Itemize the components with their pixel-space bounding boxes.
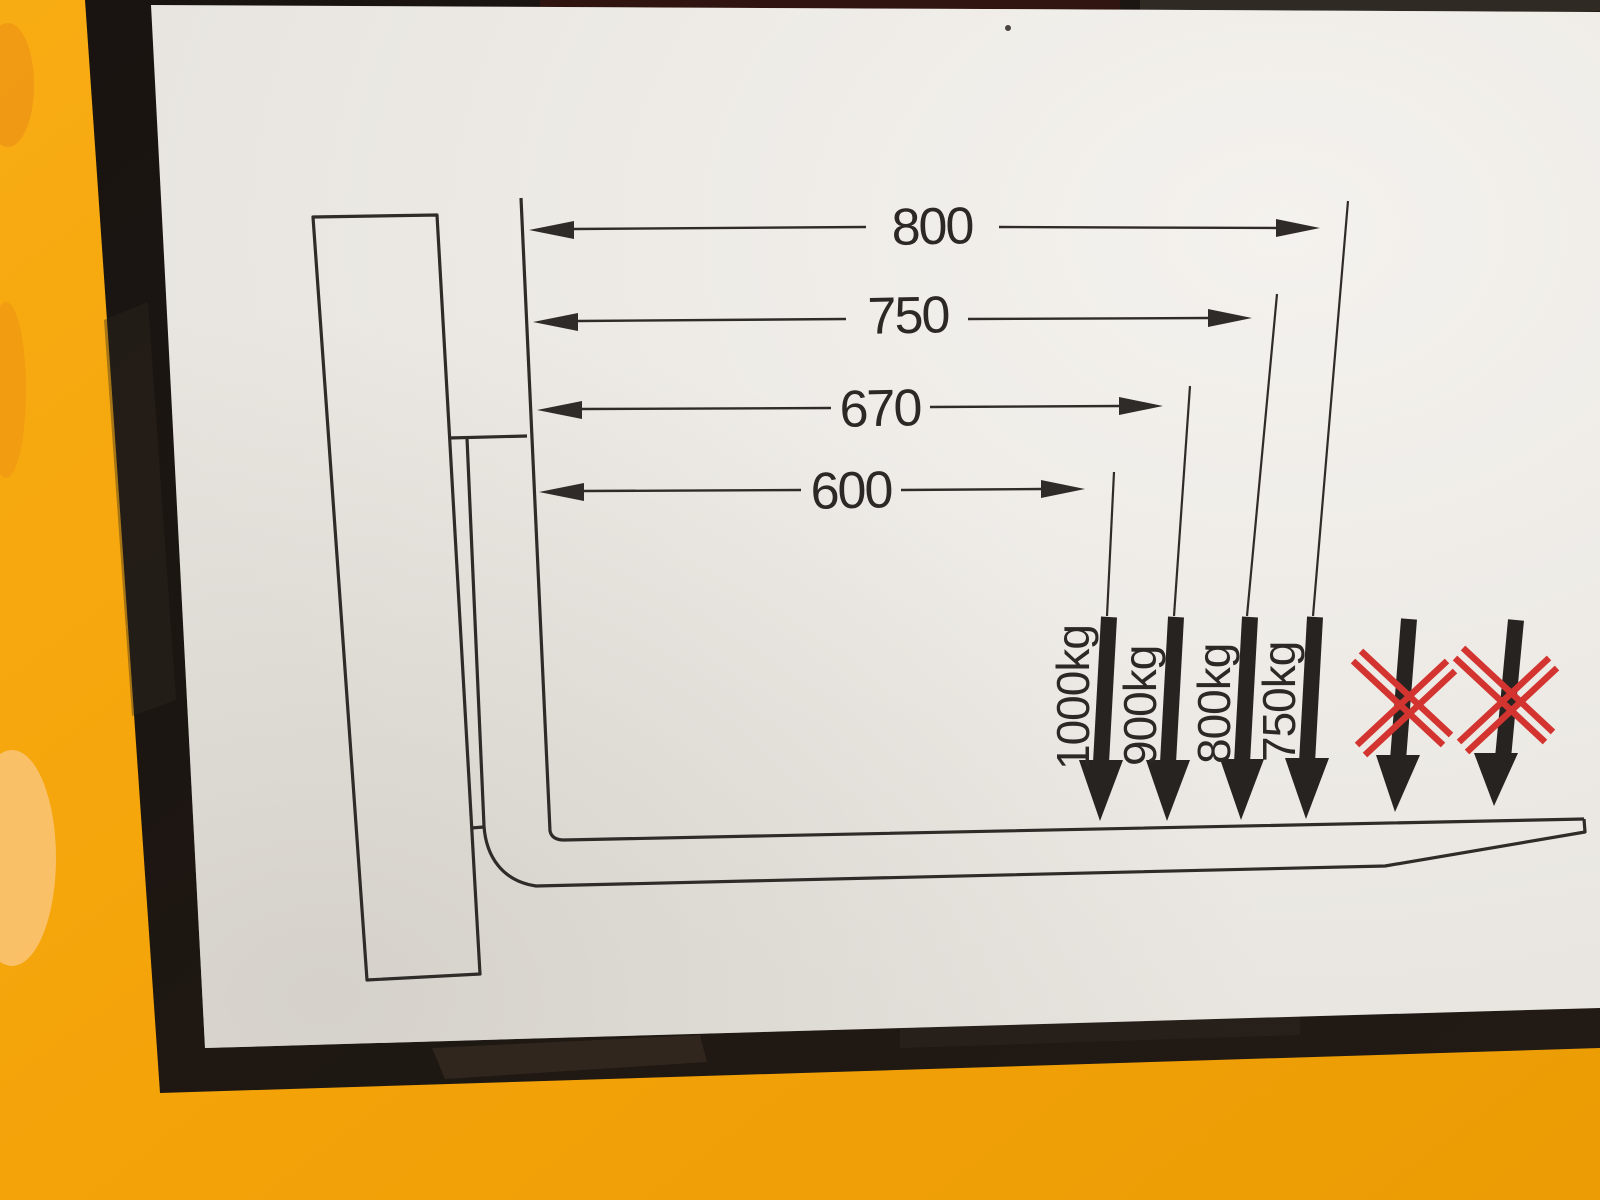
load-value-800kg: 800kg: [1188, 644, 1240, 764]
label-speck: [1005, 25, 1011, 31]
down-arrow-shaft: [1242, 617, 1250, 763]
dimension-750-value: 750: [867, 286, 949, 346]
fork-shank-top-line: [449, 436, 527, 438]
capacity-diagram-svg: 800 750 670 600 1000kg: [0, 0, 1600, 1200]
down-arrow-shaft: [1101, 617, 1109, 763]
load-value-750kg: 750kg: [1253, 642, 1305, 762]
dimension-600-value: 600: [810, 461, 892, 521]
dimension-800-value: 800: [891, 197, 973, 257]
load-value-900kg: 900kg: [1114, 646, 1166, 766]
fork-heel-tick-line: [471, 827, 484, 828]
label-shadow-gradient: [151, 0, 1600, 1050]
label-shading: [151, 0, 1600, 1050]
dimension-670-value: 670: [839, 379, 921, 439]
forklift-capacity-label-photo: 800 750 670 600 1000kg: [0, 0, 1600, 1200]
down-arrow-shaft: [1307, 617, 1315, 763]
down-arrow-shaft: [1168, 617, 1176, 763]
load-value-1000kg: 1000kg: [1047, 625, 1099, 770]
